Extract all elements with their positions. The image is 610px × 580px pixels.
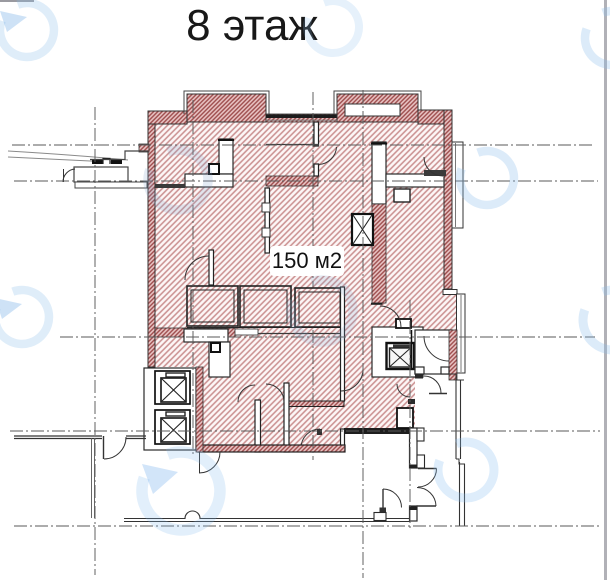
svg-text:8 этаж: 8 этаж xyxy=(186,1,318,50)
svg-text:150 м2: 150 м2 xyxy=(272,248,342,273)
